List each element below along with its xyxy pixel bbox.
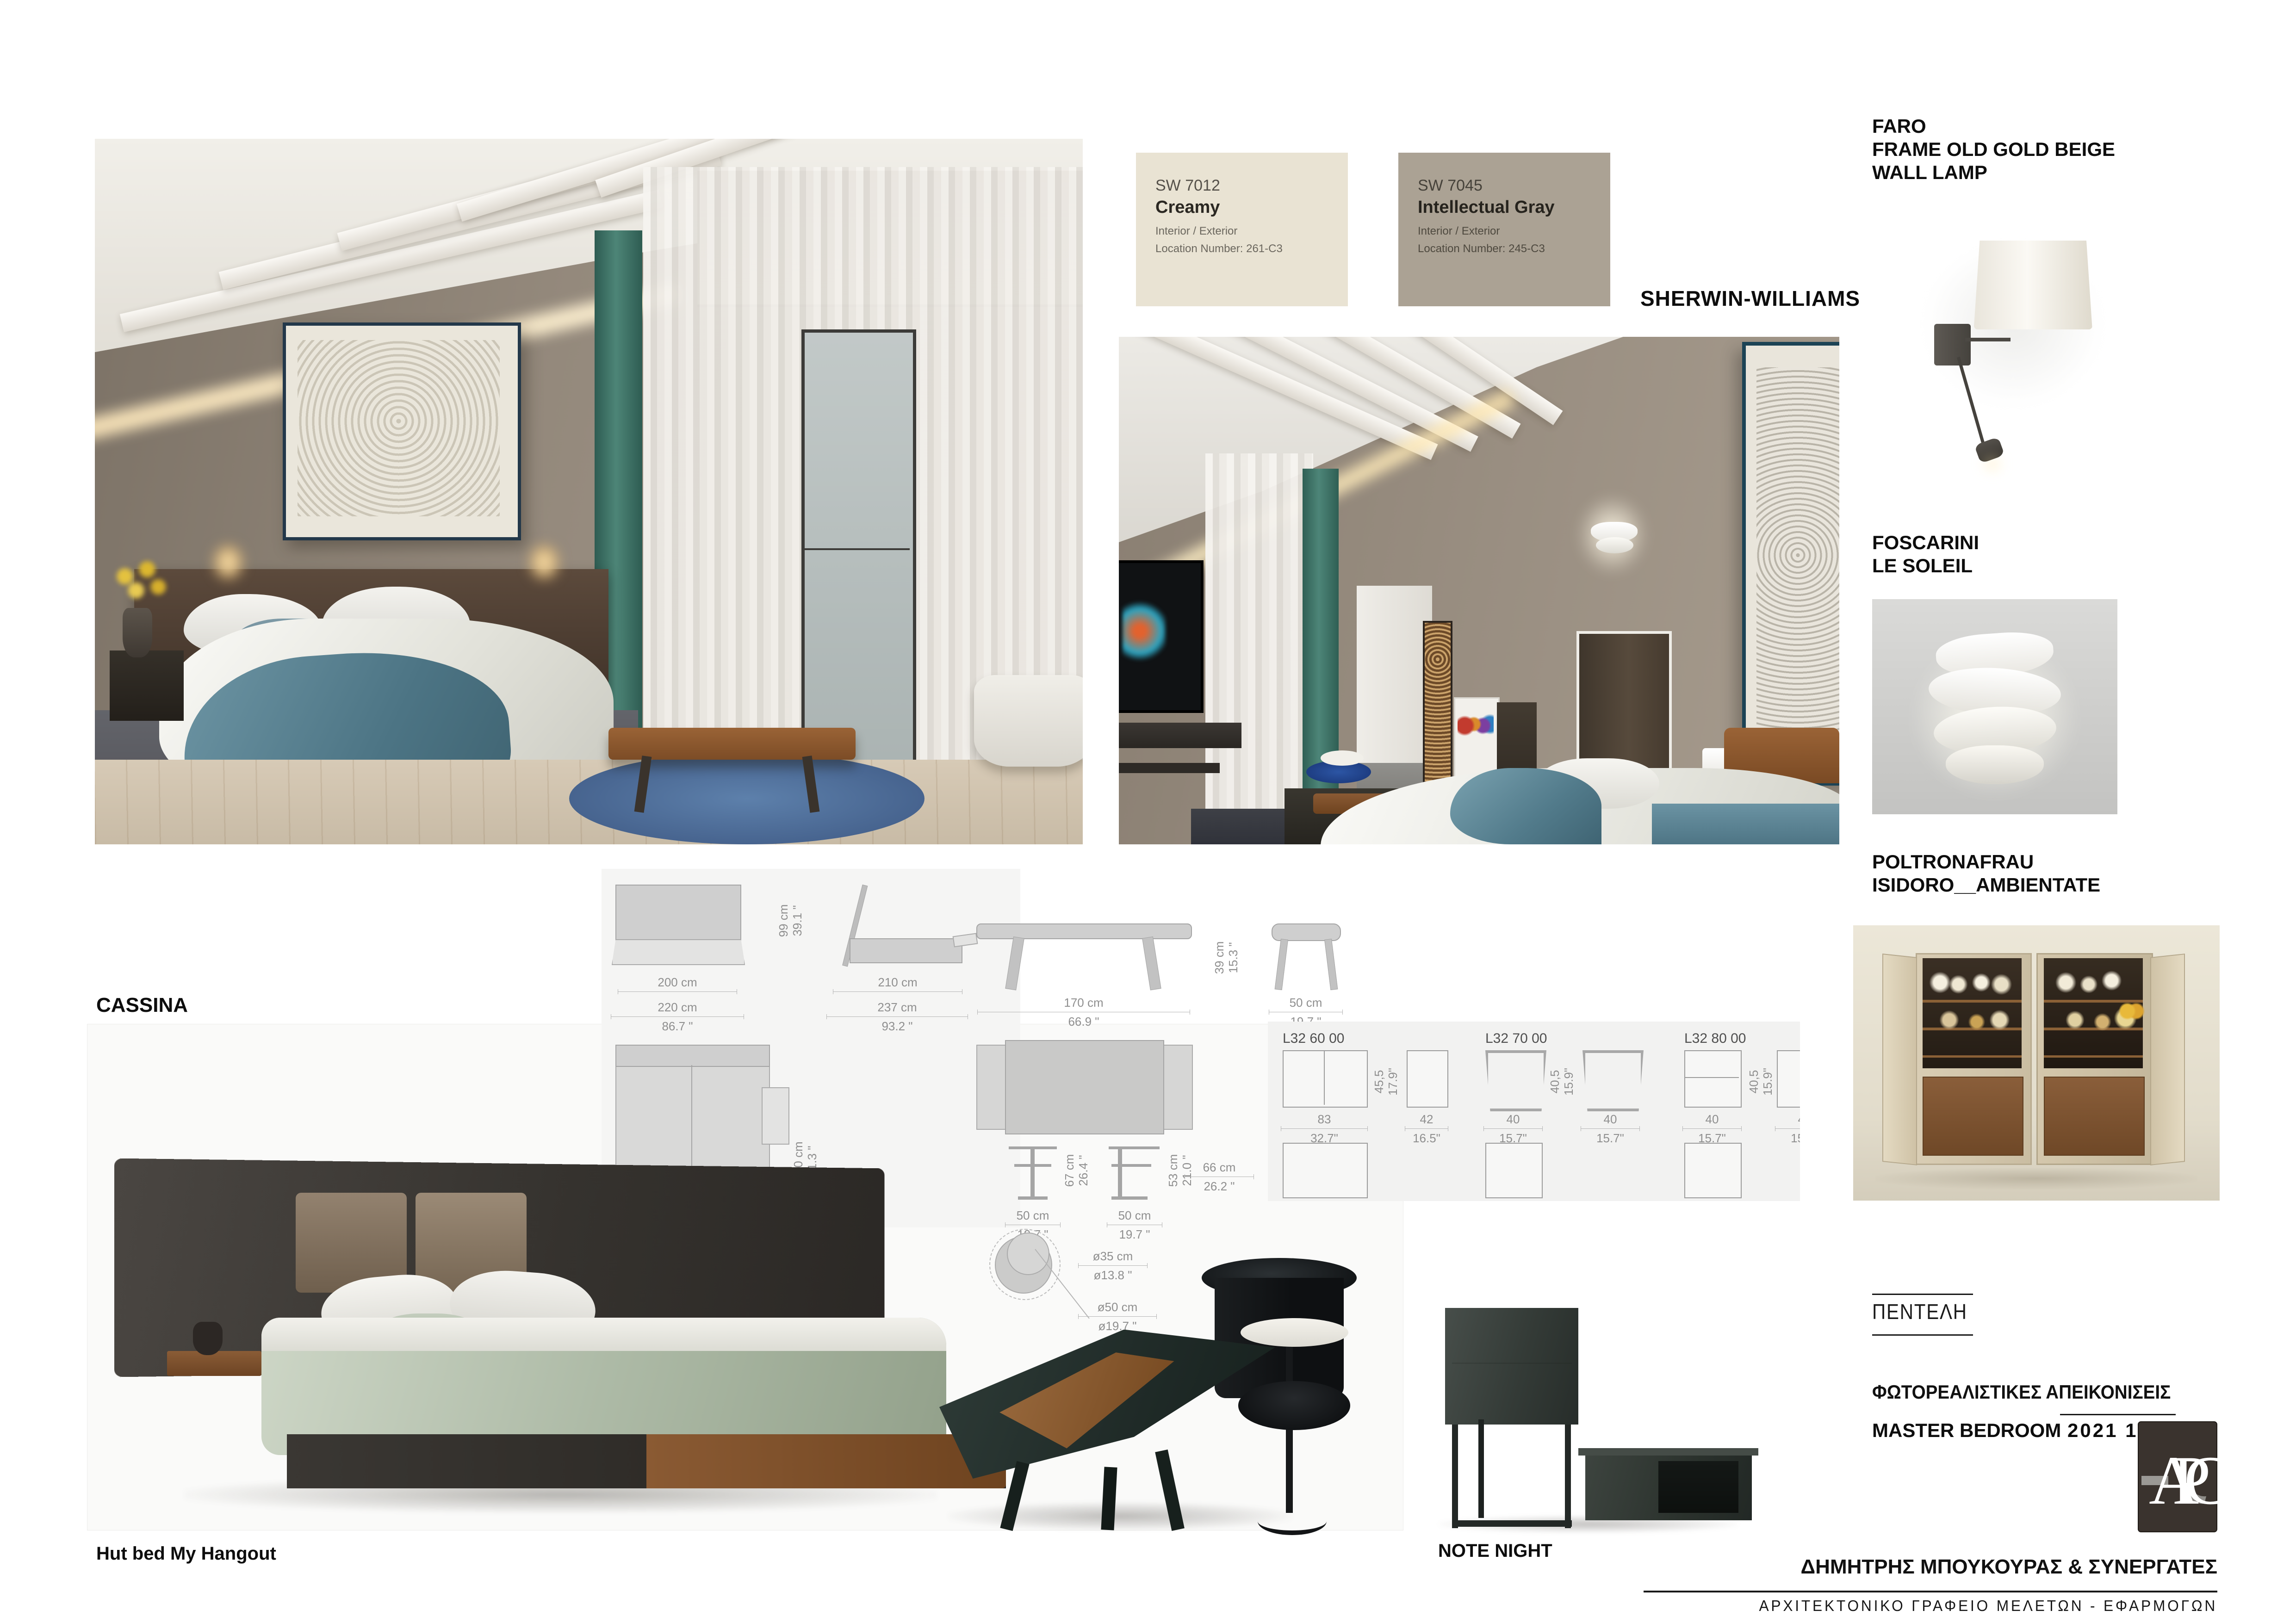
lower-drawers-left (1923, 1077, 2023, 1156)
foscarini-title: FOSCARINI LE SOLEIL (1872, 531, 1979, 577)
bench-height-dim: 39 cm15.3 " (1212, 930, 1240, 985)
l32-width-dim: 4015.7" (1483, 1112, 1543, 1145)
open-door-right (2150, 954, 2185, 1165)
nightstand-rail (1452, 1520, 1572, 1527)
lamp-band (1946, 745, 2044, 784)
l32-drawer-split (1685, 1077, 1739, 1078)
bench-front-seat (976, 923, 1192, 939)
table2-foot (1111, 1196, 1148, 1200)
table2-width-dim: 50 cm19.7 " (1107, 1208, 1162, 1241)
firm-name: ΔΗΜΗΤΡΗΣ ΜΠΟΥΚΟΥΡΑΣ & ΣΥΝΕΡΓΑΤΕΣ (1582, 1555, 2217, 1579)
table2-column (1118, 1149, 1122, 1196)
bed-side-platform (850, 938, 962, 963)
pedestal-table-black-disc (1238, 1381, 1350, 1430)
duvet-fold (261, 1318, 946, 1351)
bed-top-headboard (615, 1045, 770, 1067)
bench-top-flap (976, 1045, 1008, 1130)
date-overline (2060, 1414, 2176, 1415)
hut-bed-label: Hut bed My Hangout (96, 1543, 276, 1564)
swatch-code: SW 7012 (1155, 177, 1348, 195)
tall-nightstand-box (1445, 1308, 1578, 1425)
lamp-shade (1974, 241, 2092, 329)
l32-depth-dim: 4216.5" (1405, 1112, 1448, 1145)
l32-front (1684, 1050, 1742, 1108)
white-pouf (974, 675, 1083, 767)
bed-depth-dim: 210 cm (833, 975, 962, 994)
teal-duvet-right (1652, 804, 1839, 844)
bed-height-dim: 99 cm39.1 " (776, 893, 804, 948)
l32-depth-dim: 4015.7" (1581, 1112, 1640, 1145)
isidoro-bar-image (1853, 925, 2220, 1201)
stool-leg (1275, 939, 1288, 990)
sherwin-williams-label: SHERWIN-WILLIAMS (1640, 286, 1860, 311)
faro-title: FARO FRAME OLD GOLD BEIGE WALL LAMP (1872, 115, 2115, 184)
l32-plan (1485, 1143, 1543, 1198)
glass-door (801, 329, 917, 781)
l32-depth-dim: 4015.7" (1775, 1112, 1800, 1145)
table2-shelf (1111, 1164, 1151, 1167)
le-soleil-image (1872, 599, 2117, 814)
l32-height-dim: 45,517.9" (1372, 1056, 1400, 1107)
bed-overall-width-dim: 220 cm86.7 " (611, 1000, 744, 1033)
open-door-left (1882, 954, 1917, 1165)
bench-leg (1142, 936, 1161, 990)
swatch-name: Intellectual Gray (1418, 198, 1610, 217)
arc-logo: APC (2138, 1421, 2217, 1532)
tv-console (1119, 723, 1241, 748)
swatch-code: SW 7045 (1418, 177, 1610, 195)
bed-front-base (612, 939, 745, 965)
table2-top (1109, 1146, 1160, 1149)
shelf-vase (193, 1322, 223, 1355)
tv-screen-art (1123, 601, 1166, 662)
poltronafrau-title: POLTRONAFRAU ISIDORO__AMBIENTATE (1872, 850, 2100, 897)
table1-shelf (1014, 1164, 1051, 1167)
nightstand (110, 650, 184, 721)
lamp-arm (1965, 338, 2011, 341)
note-night-label: NOTE NIGHT (1438, 1541, 1552, 1561)
table1-height-dim: 67 cm26.4 " (1062, 1143, 1090, 1198)
lamp-bracket (1934, 324, 1971, 365)
l32-plan (1283, 1143, 1368, 1198)
firm-subtitle: ΑΡΧΙΤΕΚΤΟΝΙΚΟ ΓΡΑΦΕΙΟ ΜΕΛΕΤΩΝ - ΕΦΑΡΜΟΓΩ… (1608, 1597, 2217, 1615)
bottles (1458, 707, 1494, 738)
bed-front-headboard (615, 885, 741, 941)
bench-product-photo (939, 1249, 1370, 1536)
artwork-rings (298, 340, 500, 516)
bench-top-view (1005, 1040, 1164, 1134)
table1-column (1030, 1149, 1035, 1196)
swatch-location: Location Number: 245-C3 (1418, 242, 1610, 255)
l32-height-dim: 40,515.9" (1548, 1056, 1576, 1107)
hut-bed-photo (116, 1101, 972, 1518)
faro-lamp-image (1872, 213, 2154, 490)
bench-top-flap (1161, 1045, 1193, 1130)
l32-plan (1684, 1143, 1742, 1198)
blue-round-rug (569, 753, 925, 844)
reading-glow (1982, 457, 2002, 471)
l32-width-dim: 4015.7" (1682, 1112, 1742, 1145)
sheer-curtain (1205, 453, 1314, 844)
tv-shelf (1119, 763, 1220, 773)
penteli-overline (1872, 1294, 1973, 1295)
l32-label: L32 80 00 (1684, 1031, 1746, 1047)
note-night-photo (1425, 1277, 1758, 1536)
stool-leg (1324, 939, 1338, 990)
table1-base (1018, 1196, 1048, 1200)
l32-height-dim: 40,515.9" (1747, 1056, 1775, 1107)
fruit-bowl (2117, 1003, 2146, 1022)
sideboard-open-bay (1658, 1461, 1738, 1513)
pedestal-table-white-top (1241, 1318, 1348, 1347)
bed-overall-depth-dim: 237 cm93.2 " (826, 1000, 968, 1033)
swatch-subtitle: Interior / Exterior (1155, 225, 1348, 238)
l32-side (1407, 1050, 1448, 1108)
floor-shadow (1875, 1168, 2198, 1190)
subtitle-photorealistic: ΦΩΤΟΡΕΑΛΙΣΤΙΚΕΣ ΑΠΕΙΚΟΝΙΣΕΙΣ (1872, 1381, 2171, 1403)
l32-front (1485, 1050, 1546, 1111)
l32-label: L32 70 00 (1485, 1031, 1547, 1047)
nightstand-leg (1478, 1419, 1484, 1518)
l32-width-dim: 8332.7" (1281, 1112, 1368, 1145)
swatch-location: Location Number: 261-C3 (1155, 242, 1348, 255)
bed-bench (608, 728, 856, 760)
room-label: MASTER BEDROOM (1872, 1419, 2061, 1442)
green-drape (1303, 469, 1339, 844)
glassware (1926, 964, 2018, 1057)
sideboard-top-overhang (1578, 1448, 1758, 1456)
sconce-light (213, 545, 243, 580)
project-name: ΠΕΝΤΕΛΗ (1872, 1299, 1967, 1324)
bedroom-render-2 (1119, 337, 1839, 844)
l32-side (1777, 1050, 1800, 1108)
swatch-subtitle: Interior / Exterior (1418, 225, 1610, 238)
l32-front (1283, 1050, 1368, 1108)
l32-label: L32 60 00 (1283, 1031, 1344, 1047)
nightstand-drawer-line (1452, 1363, 1572, 1364)
l32-door-split (1324, 1051, 1325, 1105)
nightstand-leg (1565, 1425, 1571, 1528)
swatch-name: Creamy (1155, 198, 1348, 217)
nightstand-leg (1452, 1425, 1458, 1528)
bench-shadow (948, 1502, 1292, 1530)
bench-width-dim: 170 cm66.9 " (977, 996, 1190, 1028)
yellow-flowers (103, 548, 177, 619)
presentation-board: SW 7012 Creamy Interior / Exterior Locat… (0, 0, 2296, 1623)
l32-side (1582, 1050, 1644, 1111)
lower-drawers-right (2044, 1077, 2145, 1156)
l32-drawings-panel: L32 60 00 45,517.9" 8332.7" 4216.5" L32 … (1268, 1022, 1800, 1201)
cassina-label: CASSINA (96, 994, 188, 1017)
firm-divider (1644, 1591, 2217, 1592)
le-soleil-sconce-band (1596, 537, 1633, 553)
bed-width-dim: 200 cm (618, 975, 737, 994)
side-shelf (167, 1351, 261, 1376)
paint-swatch-intellectual-gray: SW 7045 Intellectual Gray Interior / Ext… (1398, 153, 1610, 306)
teal-throw (1450, 768, 1601, 844)
artwork-rings (1756, 367, 1839, 743)
glass-door-rail (801, 548, 910, 550)
penteli-underline (1872, 1334, 1973, 1336)
table-depth-dim: 66 cm26.2 " (1185, 1160, 1254, 1193)
paint-swatch-creamy: SW 7012 Creamy Interior / Exterior Locat… (1136, 153, 1348, 306)
side-table-top (1321, 750, 1364, 766)
bedroom-render-1 (95, 139, 1083, 844)
